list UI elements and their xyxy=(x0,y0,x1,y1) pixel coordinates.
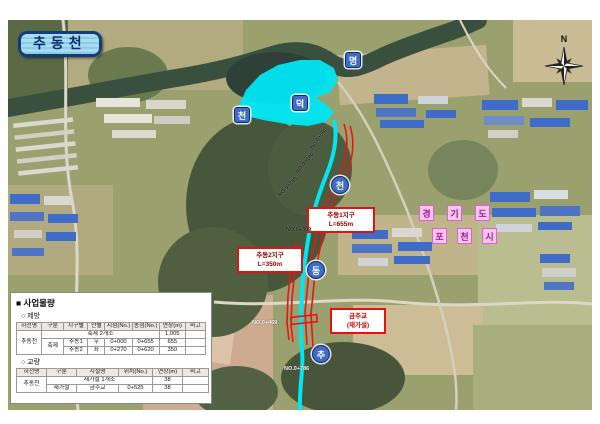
table-row: 추동천 재가설 1개소 38 xyxy=(17,377,209,385)
admin-char-gi: 기 xyxy=(447,205,462,221)
zone-name: 추동2지구 xyxy=(242,251,298,260)
cell-gubun: 축제 xyxy=(42,339,64,355)
table-row: 추동천 축제 2개소 1,005 xyxy=(17,331,206,339)
zone-name: 추동1지구 xyxy=(312,211,370,220)
quantity-panel: ■ 사업물량 ○ 제방 하천명 구분 지구별 안별 시점(No.) 종점(No.… xyxy=(10,292,212,404)
table-header-row: 하천명 구분 시설명 위치(No.) 연장(m) 비고 xyxy=(17,369,209,377)
zone-length: L=655m xyxy=(312,220,370,229)
col-header: 구분 xyxy=(47,369,77,377)
compass-rose: N xyxy=(542,32,586,90)
cell-total-length: 1,005 xyxy=(159,331,185,339)
cell-note xyxy=(185,331,205,339)
stream-name-marker-2: 동 xyxy=(307,261,325,279)
col-header: 연장(m) xyxy=(153,369,183,377)
cell-position: 0+525 xyxy=(119,385,153,393)
marker-char: 동 xyxy=(312,264,320,277)
admin-char-si: 시 xyxy=(482,228,497,244)
col-header: 하천명 xyxy=(17,323,42,331)
cell-facility-name: 금주교 xyxy=(77,385,119,393)
cell-river: 추동천 xyxy=(17,377,47,393)
zone-label-chudong2: 추동2지구 L=350m xyxy=(237,247,303,273)
marker-char: 덕 xyxy=(296,97,304,110)
cell-end: 0+620 xyxy=(132,347,159,355)
zone-label-chudong1: 추동1지구 L=655m xyxy=(307,207,375,233)
col-header: 시점(No.) xyxy=(105,323,132,331)
compass-north-label: N xyxy=(561,34,568,44)
col-header: 비고 xyxy=(185,323,205,331)
admin-char: 경 xyxy=(422,207,430,220)
cell-note xyxy=(185,339,205,347)
cell-end: 0+655 xyxy=(132,339,159,347)
cell-summary: 재가설 1개소 xyxy=(47,377,153,385)
col-header: 위치(No.) xyxy=(119,369,153,377)
cell-note xyxy=(185,347,205,355)
cell-side: 우 xyxy=(88,339,105,347)
zone-length: L=350m xyxy=(242,260,298,269)
cell-start: 0+270 xyxy=(105,347,132,355)
cell-district: 추동1 xyxy=(64,339,88,347)
admin-char-gyeong: 경 xyxy=(419,205,434,221)
admin-char-do: 도 xyxy=(475,205,490,221)
chainage-label-4: NO.0+309 xyxy=(286,227,311,233)
cell-side: 좌 xyxy=(88,347,105,355)
stream-title-plate: 추동천 xyxy=(18,31,102,57)
col-header: 시설명 xyxy=(77,369,119,377)
river-name-marker-3: 천 xyxy=(234,107,250,123)
chainage-label-5: NO.0+469 xyxy=(252,320,277,326)
col-header: 지구별 xyxy=(64,323,88,331)
bridge-section-label: ○ 교량 xyxy=(21,357,206,367)
bridge-table: 하천명 구분 시설명 위치(No.) 연장(m) 비고 추동천 재가설 1개소 … xyxy=(16,368,209,393)
stream-title-text: 추동천 xyxy=(33,35,87,51)
marker-char: 명 xyxy=(349,54,357,67)
cell-note xyxy=(183,377,209,385)
cell-length: 38 xyxy=(153,385,183,393)
col-header: 종점(No.) xyxy=(132,323,159,331)
admin-char: 기 xyxy=(450,207,458,220)
admin-char-po: 포 xyxy=(432,228,447,244)
cell-district: 추동2 xyxy=(64,347,88,355)
cell-length: 350 xyxy=(159,347,185,355)
col-header: 비고 xyxy=(183,369,209,377)
river-name-marker-2: 덕 xyxy=(292,95,308,111)
levee-table: 하천명 구분 지구별 안별 시점(No.) 종점(No.) 연장(m) 비고 추… xyxy=(16,322,206,355)
cell-river: 추동천 xyxy=(17,331,42,355)
admin-char-cheon: 천 xyxy=(457,228,472,244)
bridge-note: (재가설) xyxy=(335,321,381,330)
levee-section-label: ○ 제방 xyxy=(21,311,206,321)
stream-name-marker-3: 추 xyxy=(312,345,330,363)
report-page: 추동천 N 명 덕 천 천 동 추 추동1지구 L=655m 추동2지구 xyxy=(0,0,600,424)
cell-gubun: 재가설 xyxy=(47,385,77,393)
bridge-name: 금주교 xyxy=(335,312,381,321)
col-header: 연장(m) xyxy=(159,323,185,331)
panel-title: ■ 사업물량 xyxy=(16,297,206,309)
bridge-label-geumju: 금주교 (재가설) xyxy=(330,308,386,334)
cell-summary: 축제 2개소 xyxy=(42,331,160,339)
marker-char: 천 xyxy=(238,109,246,122)
col-header: 구분 xyxy=(42,323,64,331)
admin-char: 포 xyxy=(435,230,443,243)
marker-char: 천 xyxy=(336,179,344,192)
admin-char: 시 xyxy=(485,230,493,243)
cell-length: 38 xyxy=(153,377,183,385)
compass-star-shading xyxy=(545,47,583,85)
marker-char: 추 xyxy=(317,348,325,361)
table-row: 축제 추동1 우 0+000 0+655 655 xyxy=(17,339,206,347)
col-header: 하천명 xyxy=(17,369,47,377)
col-header: 안별 xyxy=(88,323,105,331)
admin-char: 천 xyxy=(460,230,468,243)
cell-start: 0+000 xyxy=(105,339,132,347)
stream-name-marker-1: 천 xyxy=(331,176,349,194)
cell-note xyxy=(183,385,209,393)
table-header-row: 하천명 구분 지구별 안별 시점(No.) 종점(No.) 연장(m) 비고 xyxy=(17,323,206,331)
chainage-label-6: NO.0+786 xyxy=(284,366,309,372)
admin-char: 도 xyxy=(478,207,486,220)
river-name-marker-1: 명 xyxy=(345,52,361,68)
cell-length: 655 xyxy=(159,339,185,347)
aerial-map-canvas: 추동천 N 명 덕 천 천 동 추 추동1지구 L=655m 추동2지구 xyxy=(8,20,592,410)
